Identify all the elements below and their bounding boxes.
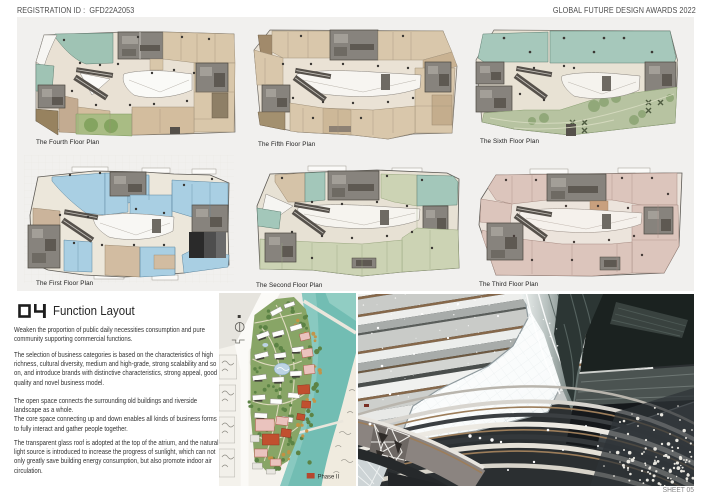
svg-text:Phase II: Phase II [318,474,340,480]
